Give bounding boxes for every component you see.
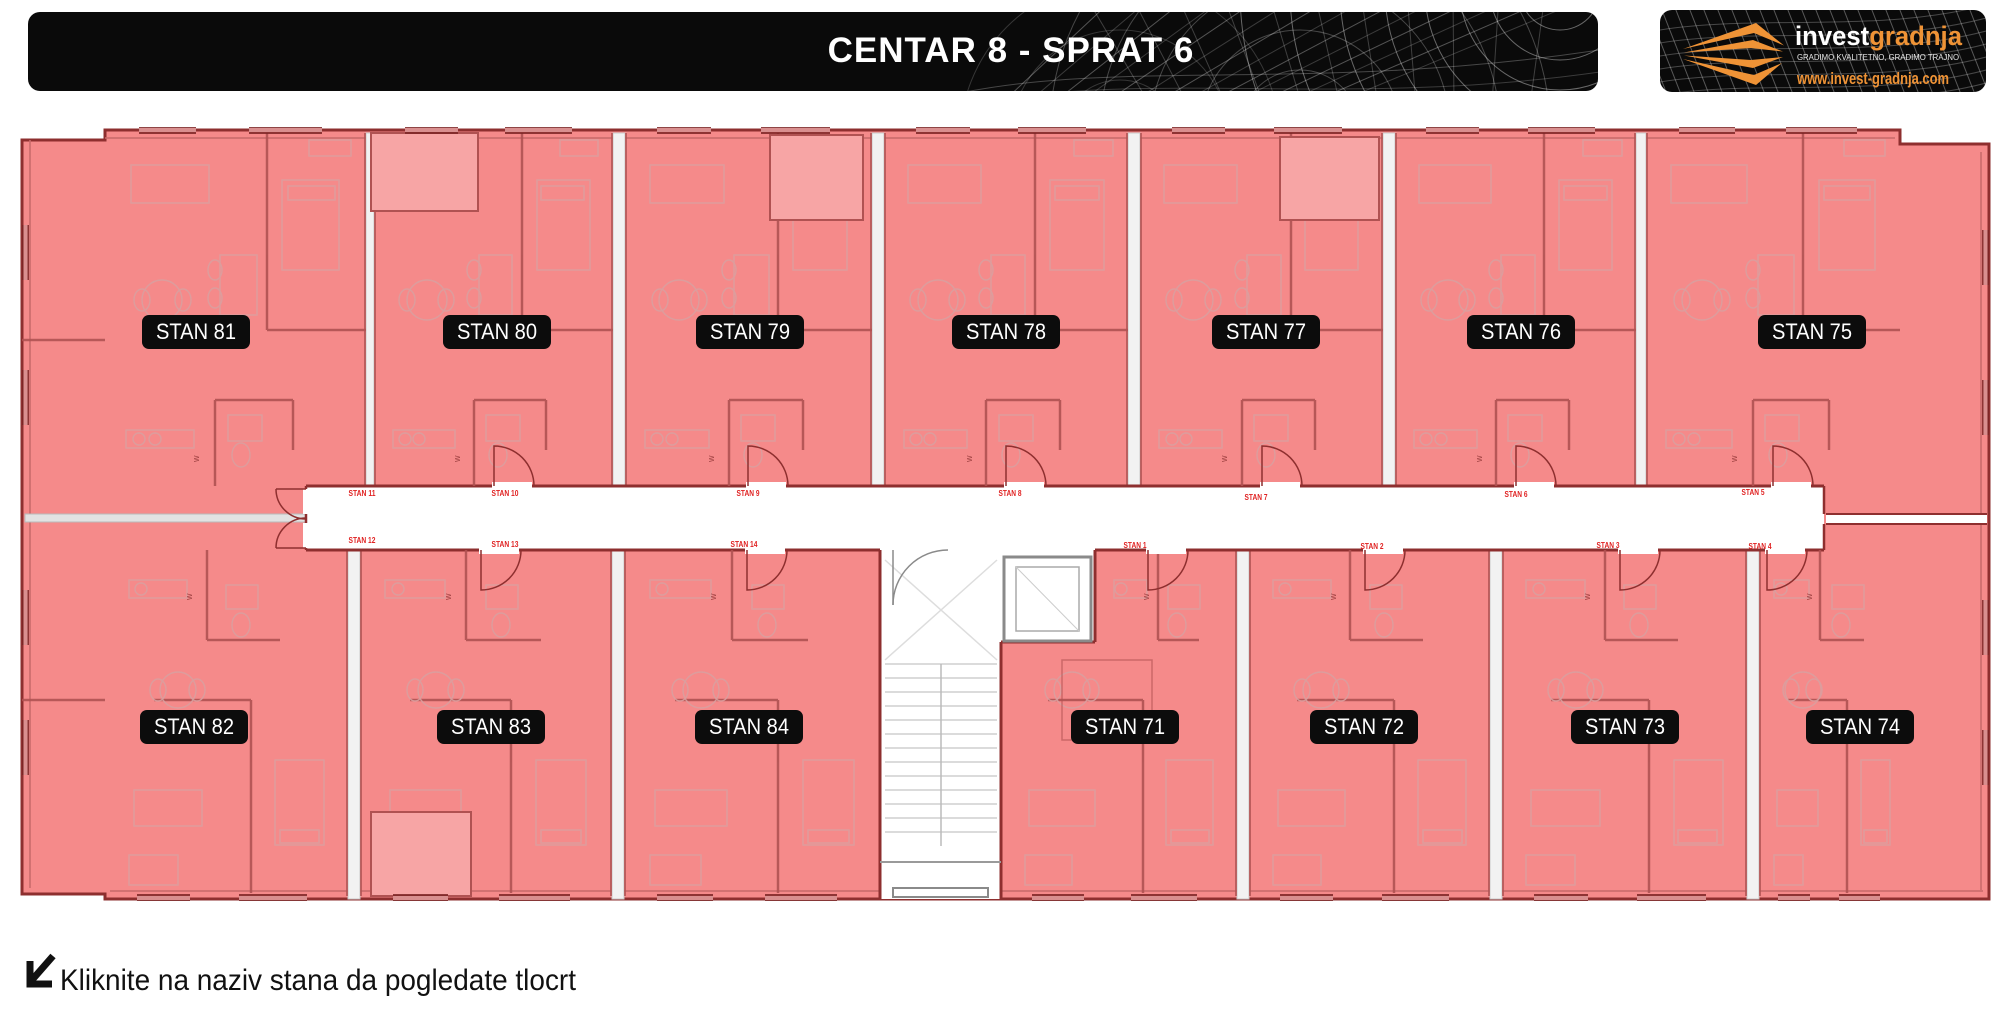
svg-text:STAN 9: STAN 9: [737, 488, 760, 498]
svg-text:STAN 73: STAN 73: [1585, 714, 1665, 739]
svg-text:STAN 3: STAN 3: [1597, 540, 1620, 550]
svg-text:w: w: [708, 593, 718, 601]
svg-text:w: w: [1474, 455, 1484, 463]
svg-text:STAN 1: STAN 1: [1124, 540, 1147, 550]
svg-text:STAN 72: STAN 72: [1324, 714, 1404, 739]
svg-text:STAN 11: STAN 11: [349, 488, 376, 498]
svg-text:w: w: [1582, 593, 1592, 601]
svg-text:GRADIMO KVALITETNO, GRADIMO TR: GRADIMO KVALITETNO, GRADIMO TRAJNO: [1797, 53, 1959, 62]
svg-text:STAN 82: STAN 82: [154, 714, 234, 739]
svg-text:STAN 75: STAN 75: [1772, 319, 1852, 344]
svg-text:w: w: [443, 593, 453, 601]
svg-text:STAN 8: STAN 8: [999, 488, 1022, 498]
svg-text:w: w: [452, 455, 462, 463]
svg-text:w: w: [1219, 455, 1229, 463]
svg-text:w: w: [706, 455, 716, 463]
svg-text:STAN 79: STAN 79: [710, 319, 790, 344]
svg-text:w: w: [964, 455, 974, 463]
svg-text:w: w: [1729, 455, 1739, 463]
svg-text:STAN 83: STAN 83: [451, 714, 531, 739]
svg-text:w: w: [184, 593, 194, 601]
svg-text:STAN 2: STAN 2: [1361, 541, 1384, 551]
svg-text:STAN 76: STAN 76: [1481, 319, 1561, 344]
svg-text:investgradnja: investgradnja: [1795, 21, 1963, 51]
svg-text:STAN 81: STAN 81: [156, 319, 236, 344]
svg-text:STAN 6: STAN 6: [1505, 489, 1528, 499]
svg-text:w: w: [1328, 593, 1338, 601]
svg-text:CENTAR 8 - SPRAT 6: CENTAR 8 - SPRAT 6: [828, 31, 1195, 70]
svg-text:STAN 74: STAN 74: [1820, 714, 1900, 739]
svg-text:STAN 77: STAN 77: [1226, 319, 1306, 344]
svg-text:w: w: [1804, 593, 1814, 601]
svg-text:STAN 14: STAN 14: [731, 539, 758, 549]
svg-text:STAN 13: STAN 13: [492, 539, 519, 549]
svg-text:www.invest-gradnja.com: www.invest-gradnja.com: [1796, 69, 1949, 88]
svg-text:Kliknite na naziv stana da pog: Kliknite na naziv stana da pogledate tlo…: [60, 964, 577, 997]
svg-text:STAN 78: STAN 78: [966, 319, 1046, 344]
svg-text:STAN 4: STAN 4: [1749, 541, 1772, 551]
svg-text:w: w: [191, 455, 201, 463]
svg-text:w: w: [1141, 593, 1151, 601]
svg-text:STAN 7: STAN 7: [1245, 492, 1268, 502]
svg-text:STAN 84: STAN 84: [709, 714, 789, 739]
svg-text:STAN 12: STAN 12: [349, 535, 376, 545]
svg-text:STAN 71: STAN 71: [1085, 714, 1165, 739]
svg-text:STAN 80: STAN 80: [457, 319, 537, 344]
svg-text:STAN 10: STAN 10: [492, 488, 519, 498]
svg-text:STAN 5: STAN 5: [1742, 487, 1765, 497]
